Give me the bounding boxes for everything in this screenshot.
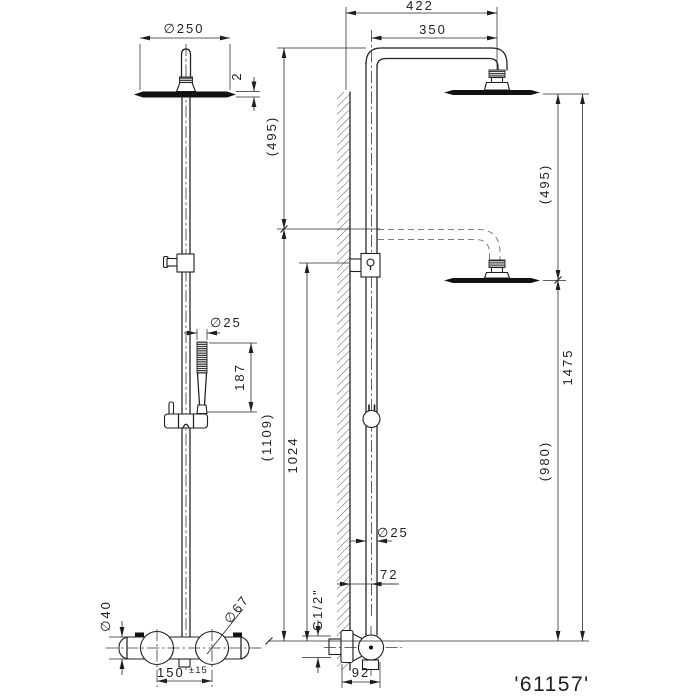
shower-system-drawing: ∅250 2 ∅25 187 ∅40 — [0, 0, 700, 700]
label-height-lower: (980) — [537, 441, 552, 481]
product-code: '61157' — [514, 673, 589, 696]
label-height-rail: (1109) — [259, 413, 274, 462]
technical-drawing-page: ∅250 2 ∅25 187 ∅40 — [0, 0, 700, 700]
head-cone — [177, 83, 196, 92]
head-plate-lower — [444, 278, 540, 283]
slider-body — [177, 254, 194, 272]
label-arm-reach: 350 — [419, 22, 447, 37]
label-wall-to-handle: 92 — [352, 665, 370, 680]
label-handshower-diameter: ∅25 — [210, 315, 242, 330]
bracket-screw — [367, 259, 374, 266]
label-body-diameter: ∅40 — [98, 600, 113, 632]
arm-neck — [492, 78, 503, 83]
label-inlet-thread: G1/2" — [310, 588, 325, 631]
hand-shower-grip — [197, 342, 207, 373]
label-drop-left: (495) — [264, 116, 279, 156]
head-cone-side — [485, 83, 510, 91]
wall-hatching — [337, 92, 350, 670]
head-collar — [180, 77, 193, 83]
head-plate-front — [134, 92, 236, 98]
inlet-flange — [341, 631, 353, 663]
arm-nut-lower — [489, 260, 505, 268]
hand-shower-nozzle — [197, 405, 207, 414]
label-head-thickness: 2 — [229, 71, 244, 80]
label-height-total: 1475 — [560, 349, 575, 386]
label-reach-overall: 422 — [406, 0, 434, 13]
label-inlet-spacing: 150 — [157, 665, 185, 680]
head-cone-lower — [485, 273, 510, 279]
holder-body — [165, 414, 208, 428]
arm-nut — [489, 70, 505, 78]
head-plate-side — [444, 90, 540, 95]
holder-pin — [169, 402, 174, 415]
label-drop-right: (495) — [537, 164, 552, 204]
bracket-arm — [350, 259, 362, 272]
label-pipe-diameter: ∅25 — [377, 525, 409, 540]
label-inlet-spacing-tol: ±15 — [189, 665, 208, 676]
arm-neck-lower — [492, 268, 503, 273]
label-handshower-length: 187 — [232, 363, 247, 391]
label-wall-to-pipe: 72 — [380, 567, 398, 582]
label-head-diameter: ∅250 — [163, 21, 204, 36]
label-height-bracket: 1024 — [285, 437, 300, 474]
diverter-lever — [167, 259, 177, 267]
